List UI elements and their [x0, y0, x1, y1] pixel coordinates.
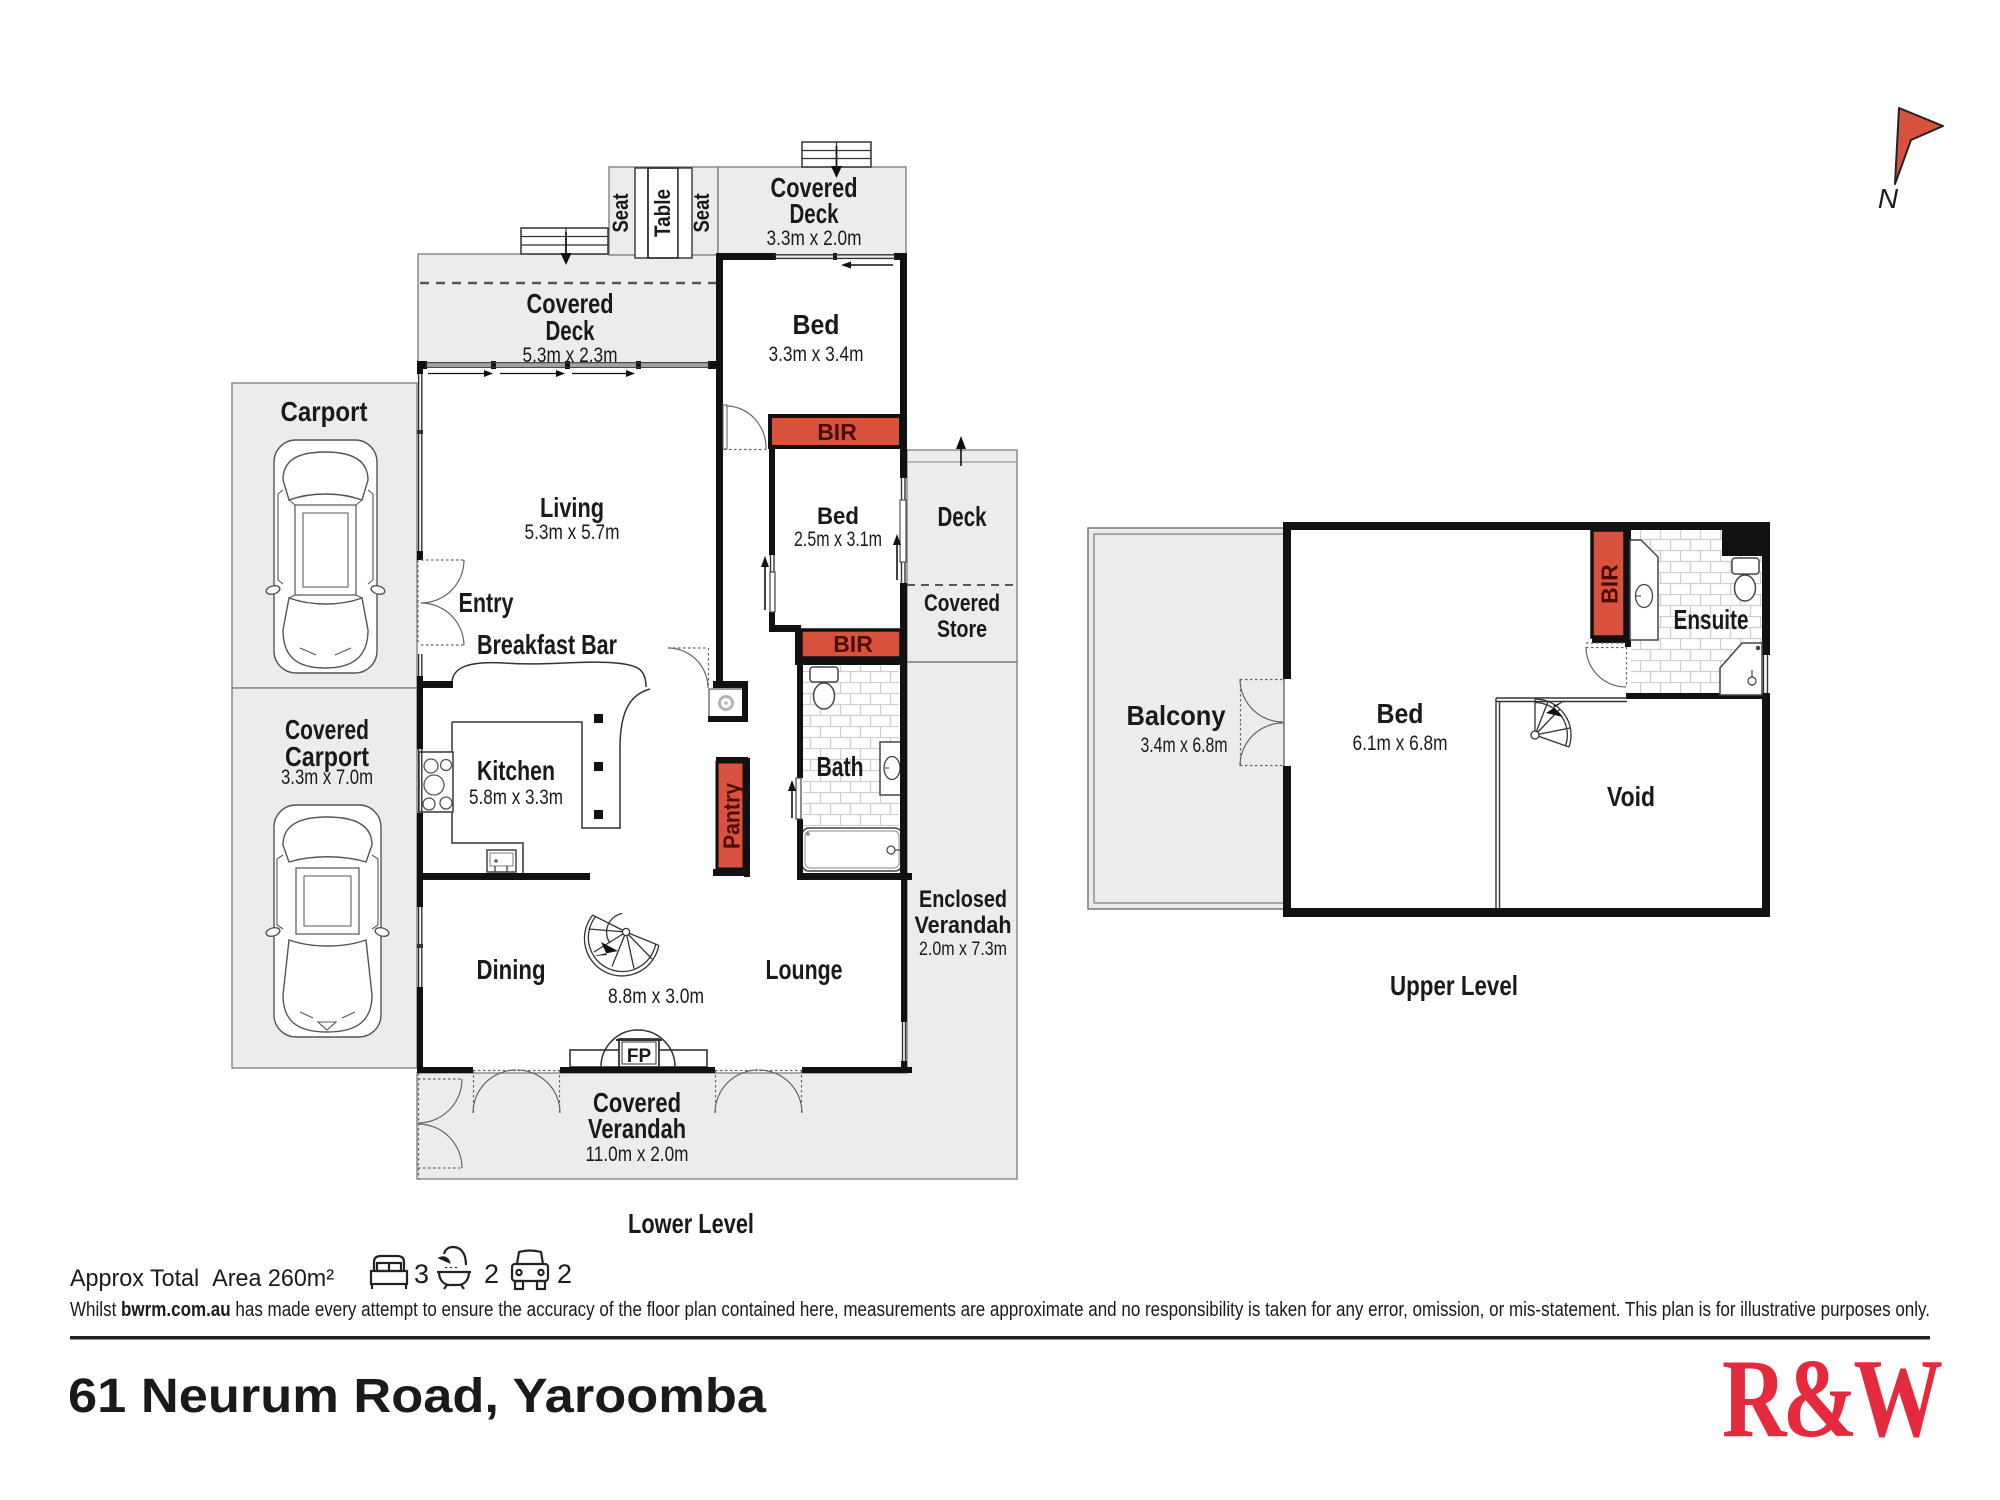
svg-text:5.8m x 3.3m: 5.8m x 3.3m	[469, 786, 563, 809]
svg-text:Entry: Entry	[459, 587, 514, 618]
svg-text:5.3m x 2.3m: 5.3m x 2.3m	[523, 344, 618, 367]
svg-text:Carport: Carport	[281, 396, 368, 427]
svg-text:Lounge: Lounge	[766, 954, 843, 985]
svg-text:5.3m x 5.7m: 5.3m x 5.7m	[525, 521, 620, 544]
svg-text:BIR: BIR	[833, 631, 873, 657]
svg-text:61 Neurum Road, Yaroomba: 61 Neurum Road, Yaroomba	[68, 1370, 766, 1423]
svg-text:2.0m x 7.3m: 2.0m x 7.3m	[919, 939, 1007, 960]
svg-text:Lower Level: Lower Level	[628, 1208, 754, 1239]
svg-text:3: 3	[414, 1259, 429, 1289]
svg-text:Pantry: Pantry	[719, 783, 745, 849]
svg-text:Deck: Deck	[938, 501, 987, 532]
svg-text:N: N	[1878, 183, 1899, 214]
svg-text:Verandah: Verandah	[915, 912, 1012, 939]
svg-text:Living: Living	[540, 492, 604, 523]
svg-text:Seat: Seat	[608, 193, 633, 233]
svg-text:3.3m x 3.4m: 3.3m x 3.4m	[769, 343, 864, 366]
svg-text:Approx Total Area 260m²: Approx Total Area 260m²	[70, 1265, 334, 1292]
svg-text:Verandah: Verandah	[588, 1113, 686, 1144]
svg-text:Void: Void	[1607, 781, 1655, 812]
svg-text:Upper Level: Upper Level	[1390, 970, 1518, 1001]
svg-text:Whilst bwrm.com.au has made ev: Whilst bwrm.com.au has made every attemp…	[70, 1299, 1930, 1321]
svg-text:Seat: Seat	[689, 193, 714, 233]
svg-text:2.5m x 3.1m: 2.5m x 3.1m	[794, 528, 882, 551]
svg-text:Store: Store	[937, 616, 987, 643]
svg-text:Bath: Bath	[817, 751, 864, 782]
svg-text:2: 2	[484, 1259, 499, 1289]
svg-text:Deck: Deck	[790, 198, 839, 229]
svg-text:6.1m x 6.8m: 6.1m x 6.8m	[1353, 732, 1448, 755]
svg-text:3.3m x 2.0m: 3.3m x 2.0m	[767, 227, 862, 250]
svg-text:Bed: Bed	[1377, 698, 1424, 729]
svg-text:Breakfast Bar: Breakfast Bar	[477, 629, 617, 660]
svg-text:R&W: R&W	[1722, 1337, 1942, 1461]
svg-text:3.3m x 7.0m: 3.3m x 7.0m	[281, 766, 373, 789]
svg-text:8.8m x 3.0m: 8.8m x 3.0m	[608, 985, 704, 1008]
svg-text:BIR: BIR	[1597, 564, 1623, 604]
svg-text:Deck: Deck	[546, 315, 595, 346]
svg-text:Bed: Bed	[817, 503, 859, 530]
svg-text:Kitchen: Kitchen	[477, 755, 555, 786]
svg-text:Ensuite: Ensuite	[1674, 604, 1749, 635]
svg-text:Covered: Covered	[924, 590, 1000, 617]
svg-text:3.4m x 6.8m: 3.4m x 6.8m	[1141, 734, 1228, 757]
svg-text:Enclosed: Enclosed	[919, 886, 1007, 913]
svg-text:FP: FP	[627, 1046, 652, 1067]
svg-text:Table: Table	[650, 189, 675, 237]
svg-text:Balcony: Balcony	[1127, 700, 1226, 731]
svg-text:11.0m x 2.0m: 11.0m x 2.0m	[586, 1143, 689, 1166]
svg-text:Bed: Bed	[793, 309, 840, 340]
svg-text:2: 2	[557, 1259, 572, 1289]
svg-text:BIR: BIR	[817, 419, 857, 445]
svg-text:Dining: Dining	[477, 954, 546, 985]
